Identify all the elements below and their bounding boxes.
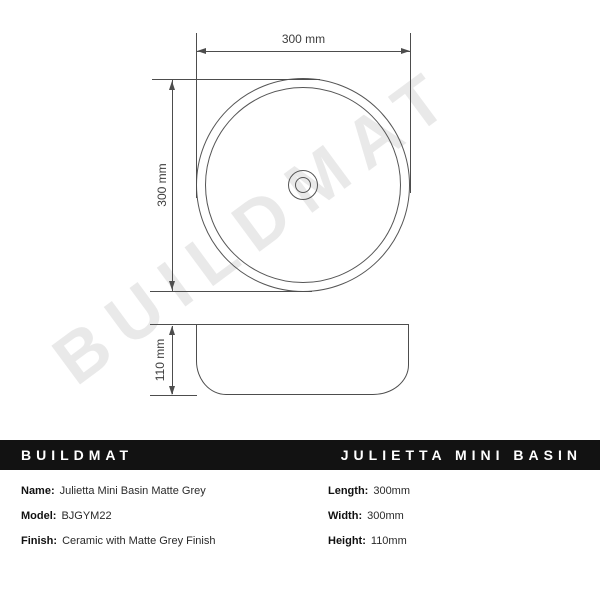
arrowhead-left-icon [197, 48, 206, 54]
spec-length-value: 300mm [373, 485, 410, 497]
spec-model-value: BJGYM22 [61, 510, 111, 522]
extension-line-left [196, 33, 197, 198]
spec-height-label: Height: [328, 535, 366, 547]
spec-length-row: Length:300mm [328, 485, 410, 497]
spec-name-row: Name:Julietta Mini Basin Matte Grey [21, 485, 206, 497]
top-width-dimension-label: 300 mm [196, 32, 411, 46]
spec-length-label: Length: [328, 485, 368, 497]
side-arrowhead-down-icon [169, 386, 175, 395]
brand-name: BUILDMAT [21, 447, 133, 463]
spec-width-row: Width:300mm [328, 510, 404, 522]
extension-line-right [410, 33, 411, 193]
spec-name-label: Name: [21, 485, 55, 497]
height-dimension-line [172, 80, 173, 291]
spec-model-row: Model:BJGYM22 [21, 510, 112, 522]
spec-finish-label: Finish: [21, 535, 57, 547]
top-height-dimension-label: 300 mm [155, 145, 169, 225]
spec-finish-value: Ceramic with Matte Grey Finish [62, 535, 215, 547]
spec-height-value: 110mm [371, 535, 407, 547]
spec-width-label: Width: [328, 510, 362, 522]
basin-side-profile [196, 324, 409, 395]
arrowhead-up-icon [169, 81, 175, 90]
extension-line-top [152, 79, 320, 80]
spec-finish-row: Finish:Ceramic with Matte Grey Finish [21, 535, 216, 547]
side-height-dimension-label: 110 mm [153, 320, 167, 400]
side-height-dimension-line [172, 326, 173, 394]
arrowhead-down-icon [169, 281, 175, 290]
spec-width-value: 300mm [367, 510, 404, 522]
spec-name-value: Julietta Mini Basin Matte Grey [60, 485, 206, 497]
title-banner: BUILDMAT JULIETTA MINI BASIN [0, 440, 600, 470]
width-dimension-line [196, 51, 411, 52]
basin-spec-sheet: BUILDMAT 300 mm 300 mm 110 mm BUILDMAT [0, 0, 600, 600]
extension-line-bottom [150, 291, 312, 292]
arrowhead-right-icon [401, 48, 410, 54]
spec-height-row: Height:110mm [328, 535, 407, 547]
drain-inner-circle [295, 177, 311, 193]
spec-model-label: Model: [21, 510, 56, 522]
product-name: JULIETTA MINI BASIN [341, 447, 582, 463]
side-arrowhead-up-icon [169, 326, 175, 335]
